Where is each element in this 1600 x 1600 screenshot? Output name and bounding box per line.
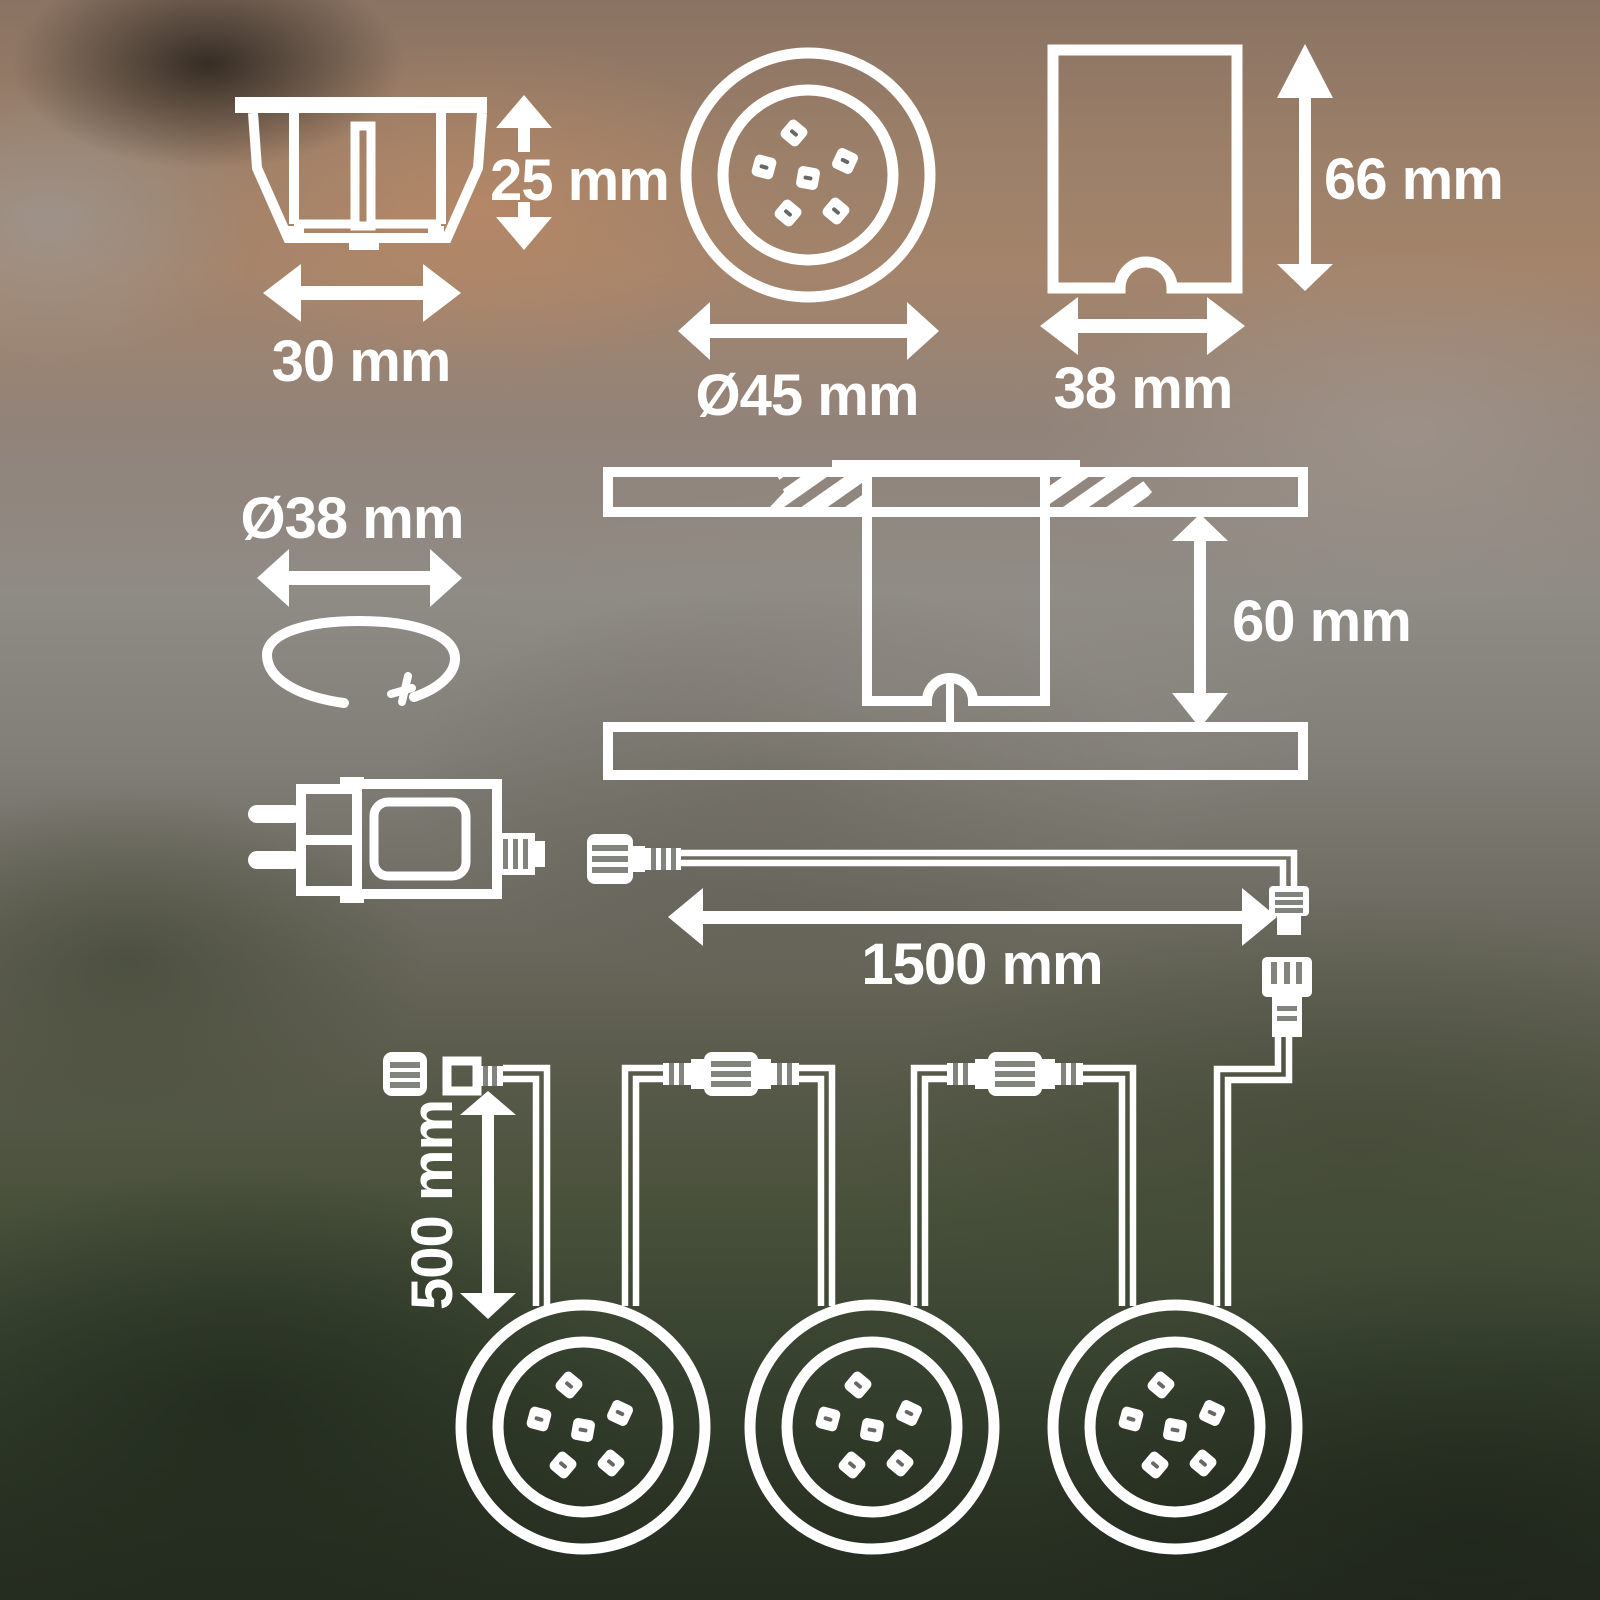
- housing-width-label: 30 mm: [272, 329, 451, 394]
- width-dimension-38mm: 38 mm: [1040, 297, 1245, 421]
- ring-diameter-label: Ø38 mm: [241, 486, 464, 551]
- chain-light-3: [1053, 1305, 1297, 1549]
- chain-cable-length-label: 500 mm: [400, 1100, 465, 1310]
- height-dimension-25mm: 25 mm: [490, 95, 669, 250]
- depth-dimension-60mm: 60 mm: [1172, 514, 1411, 728]
- sleeve-width-label: 38 mm: [1054, 356, 1233, 421]
- recessed-housing-cross-section-icon: [235, 97, 487, 250]
- power-plug-icon: [248, 777, 545, 903]
- width-dimension-30mm: 30 mm: [263, 264, 461, 394]
- length-dimension-1500mm: 1500 mm: [668, 888, 1277, 997]
- mounting-ring-dimension: Ø38 mm: [241, 486, 464, 607]
- mounting-sleeve-side-view-icon: [1053, 50, 1237, 288]
- dimension-line-drawing: 25 mm 30 mm Ø45 mm 66 mm: [0, 0, 1600, 1600]
- product-dimension-diagram: 25 mm 30 mm Ø45 mm 66 mm: [0, 0, 1600, 1600]
- light-diameter-label: Ø45 mm: [696, 363, 919, 428]
- screw-cap-connector-icon: [587, 834, 681, 884]
- recess-depth-label: 60 mm: [1232, 589, 1411, 654]
- light-chain-figure: [383, 1052, 1297, 1549]
- inline-coupler-icon: [947, 1052, 1083, 1096]
- chain-light-1: [461, 1305, 705, 1549]
- diameter-dimension-45mm: Ø45 mm: [678, 302, 939, 428]
- retaining-ring-icon: [267, 621, 455, 703]
- chain-start-connector-icon: [447, 1061, 503, 1091]
- cable-plug-connector-icon: [1269, 886, 1309, 935]
- spacing-dimension-500mm: 500 mm: [400, 1091, 516, 1319]
- inline-coupler-icon: [663, 1052, 799, 1096]
- light-face-top-view-icon: [686, 53, 930, 297]
- housing-height-label: 25 mm: [490, 148, 669, 213]
- sleeve-height-label: 66 mm: [1324, 147, 1503, 212]
- cable-length-label: 1500 mm: [861, 932, 1102, 997]
- cable-socket-connector-icon: [1262, 957, 1312, 1037]
- height-dimension-66mm: 66 mm: [1277, 44, 1503, 291]
- chain-light-2: [750, 1305, 994, 1549]
- end-cap-icon: [383, 1052, 427, 1096]
